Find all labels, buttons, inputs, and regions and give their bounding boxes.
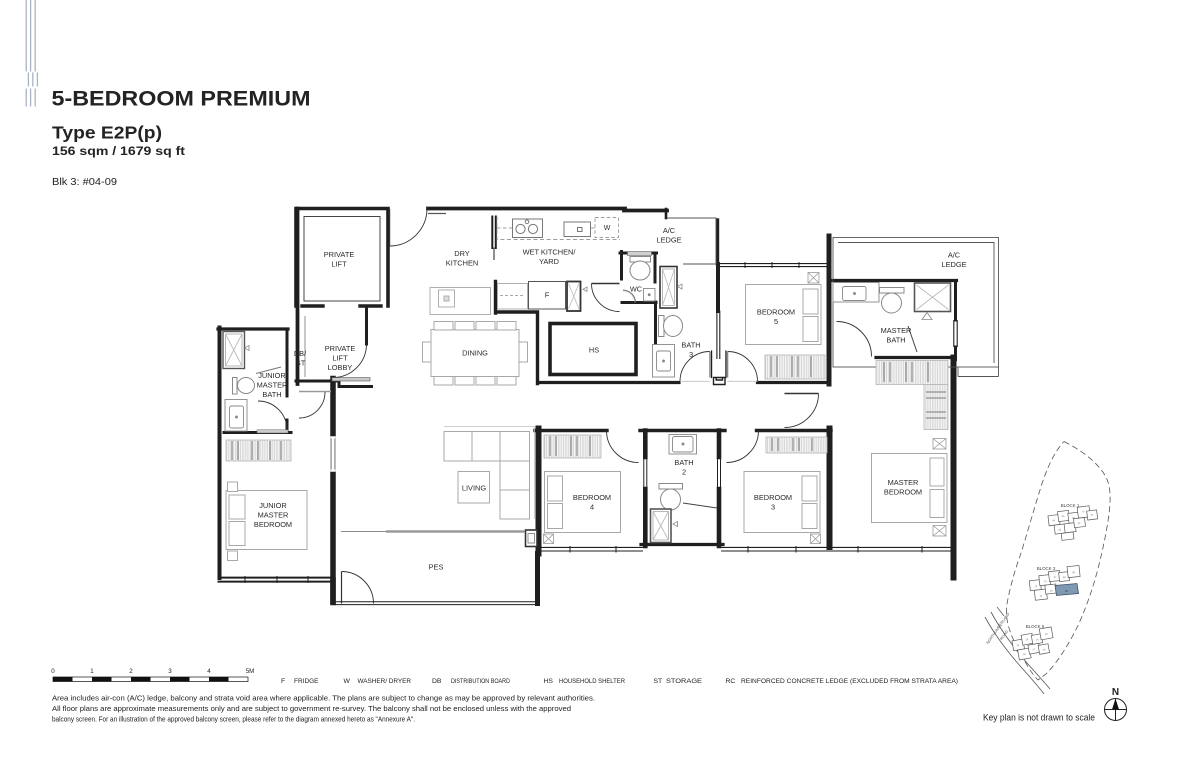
svg-text:BLOCK 3: BLOCK 3 (1037, 566, 1056, 571)
svg-text:PRIVATE: PRIVATE (325, 344, 356, 353)
svg-text:WC: WC (630, 285, 643, 294)
svg-text:LEDGE: LEDGE (941, 260, 966, 269)
svg-text:LOBBY: LOBBY (328, 363, 353, 372)
svg-text:BLOCK 5: BLOCK 5 (1026, 624, 1045, 629)
svg-text:DINING: DINING (462, 349, 488, 358)
svg-text:PES: PES (429, 563, 444, 572)
svg-text:BATH: BATH (886, 336, 905, 345)
svg-text:HS: HS (544, 678, 554, 685)
svg-text:F: F (281, 678, 285, 685)
svg-text:LEDGE: LEDGE (656, 236, 681, 245)
svg-text:5: 5 (774, 317, 778, 326)
svg-text:BATH: BATH (262, 390, 281, 399)
svg-text:balcony screen. For an illustr: balcony screen. For an illustration of t… (52, 714, 415, 723)
svg-text:HOUSEHOLD SHELTER: HOUSEHOLD SHELTER (559, 678, 625, 685)
svg-text:Blk 3: #04-09: Blk 3: #04-09 (52, 177, 117, 188)
svg-text:KITCHEN: KITCHEN (446, 259, 478, 268)
svg-text:JUNIOR: JUNIOR (259, 501, 287, 510)
svg-text:FRIDGE: FRIDGE (294, 678, 319, 685)
svg-text:MASTER: MASTER (888, 478, 919, 487)
svg-text:156 sqm / 1679 sq ft: 156 sqm / 1679 sq ft (52, 144, 185, 158)
svg-text:LIFT: LIFT (332, 354, 348, 363)
svg-text:BATH: BATH (681, 341, 700, 350)
svg-text:Area includes air-con (A/C) le: Area includes air-con (A/C) ledge, balco… (52, 694, 595, 703)
svg-text:ST: ST (654, 678, 663, 685)
svg-text:3: 3 (689, 350, 693, 359)
svg-text:Type E2P(p): Type E2P(p) (52, 122, 162, 142)
svg-text:WET KITCHEN/: WET KITCHEN/ (523, 248, 577, 257)
svg-text:All floor plans are approximat: All floor plans are approximate measurem… (52, 704, 571, 713)
svg-text:BEDROOM: BEDROOM (884, 488, 922, 497)
svg-text:BLOCK 1: BLOCK 1 (1061, 503, 1080, 508)
svg-text:2: 2 (682, 468, 686, 477)
svg-text:MASTER: MASTER (258, 511, 289, 520)
svg-text:4: 4 (207, 668, 211, 675)
svg-text:MASTER: MASTER (881, 326, 912, 335)
svg-text:LIVING: LIVING (462, 484, 486, 493)
svg-text:3: 3 (771, 503, 775, 512)
svg-text:BEDROOM: BEDROOM (254, 520, 292, 529)
svg-text:3: 3 (168, 668, 172, 675)
svg-text:5-BEDROOM PREMIUM: 5-BEDROOM PREMIUM (52, 86, 311, 110)
svg-text:YARD: YARD (539, 257, 559, 266)
svg-text:N: N (1112, 687, 1119, 698)
svg-text:DISTRIBUTION BOARD: DISTRIBUTION BOARD (451, 678, 510, 685)
svg-text:DB: DB (432, 678, 442, 685)
svg-text:2: 2 (129, 668, 133, 675)
svg-text:RC: RC (726, 678, 736, 685)
svg-text:MASTER: MASTER (257, 381, 288, 390)
svg-text:1: 1 (90, 668, 94, 675)
svg-text:W: W (604, 225, 611, 232)
svg-text:WASHER/ DRYER: WASHER/ DRYER (358, 678, 412, 685)
svg-text:ST: ST (296, 359, 306, 368)
svg-text:HS: HS (589, 346, 599, 355)
svg-text:BATH: BATH (674, 458, 693, 467)
svg-text:A/C: A/C (663, 226, 676, 235)
svg-text:JUNIOR: JUNIOR (258, 371, 286, 380)
svg-text:REINFORCED CONCRETE LEDGE (EXC: REINFORCED CONCRETE LEDGE (EXCLUDED FROM… (741, 678, 958, 685)
svg-text:BEDROOM: BEDROOM (573, 493, 611, 502)
svg-text:PRIVATE: PRIVATE (324, 250, 355, 259)
svg-text:4: 4 (590, 503, 594, 512)
svg-text:DRY: DRY (454, 249, 470, 258)
svg-text:STORAGE: STORAGE (666, 678, 702, 685)
svg-text:5M: 5M (246, 668, 255, 675)
svg-text:Key plan is not drawn to scale: Key plan is not drawn to scale (983, 713, 1095, 723)
svg-text:DB/: DB/ (294, 349, 307, 358)
svg-text:W: W (344, 678, 351, 685)
svg-text:A/C: A/C (948, 251, 961, 260)
svg-text:BEDROOM: BEDROOM (757, 308, 795, 317)
svg-text:BEDROOM: BEDROOM (754, 493, 792, 502)
svg-text:0: 0 (51, 668, 55, 675)
svg-text:LIFT: LIFT (331, 260, 347, 269)
svg-text:F: F (545, 291, 550, 300)
